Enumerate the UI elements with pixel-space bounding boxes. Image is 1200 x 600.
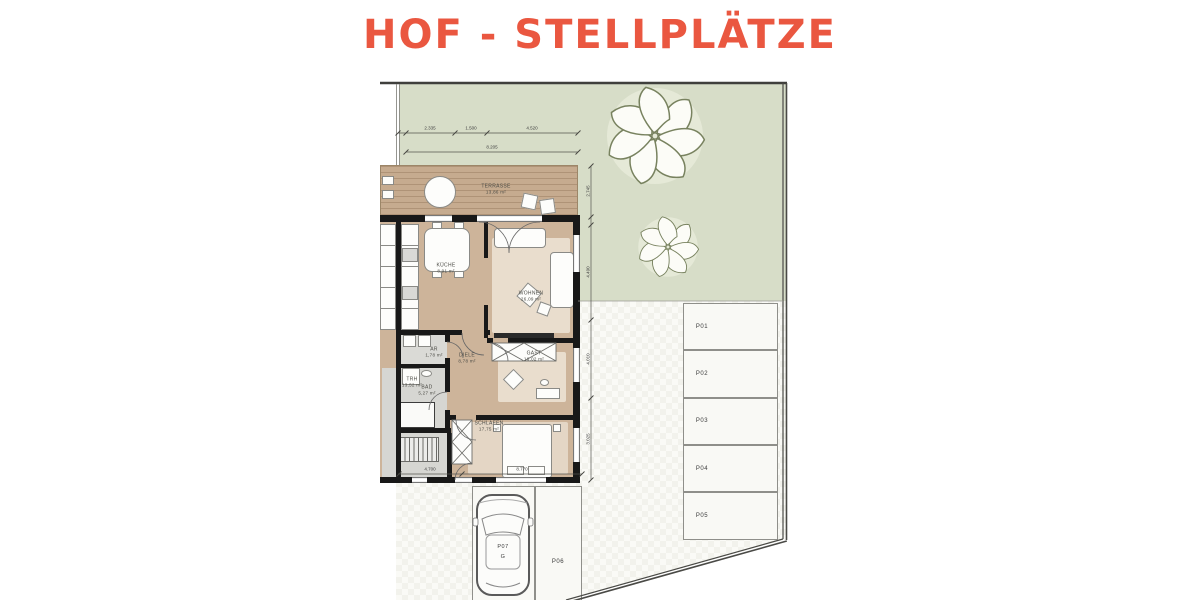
room-label-kueche: KÜCHE 8,91 m² [436, 263, 455, 274]
wall-segment [472, 477, 496, 483]
window [496, 477, 546, 483]
floor-plan-page: HOF - STELLPLÄTZE [0, 0, 1200, 600]
parking-label-p01: P01 [696, 324, 708, 330]
room-label-schlafen: SCHLAFEN 17,75 m² [474, 421, 503, 432]
staircase [399, 437, 439, 462]
desk-chair [540, 379, 549, 386]
room-label-terrasse: TERRASSE 13,86 m² [481, 184, 510, 195]
dim-right-1: 2.745 [586, 185, 591, 196]
window [573, 348, 580, 382]
wall-segment [445, 330, 450, 342]
parking-label-p04: P04 [696, 466, 708, 472]
wall-segment [447, 433, 452, 483]
parking-stall-p07 [472, 486, 535, 600]
room-label-gast: GAST 16,02 m² [524, 351, 544, 362]
entry-door [455, 477, 472, 483]
wall-segment [508, 338, 578, 343]
terrace-door [477, 215, 542, 222]
dim-top-2: 1.500 [465, 126, 476, 131]
window [573, 235, 580, 272]
dim-right-4: 3.025 [586, 433, 591, 444]
wall-segment [445, 358, 450, 392]
neighbor-terrace-chair [382, 176, 394, 185]
wall-segment [445, 410, 450, 433]
party-wall [396, 215, 401, 483]
desk [536, 388, 560, 399]
parking-label-p06: P06 [552, 559, 564, 565]
parking-label-p07: P07 [497, 544, 508, 550]
sofa [494, 228, 546, 248]
dryer [418, 335, 431, 347]
washer [403, 335, 416, 347]
nightstand [553, 424, 561, 432]
wall-segment [573, 382, 580, 428]
room-label-ar: AR 1,78 m² [425, 347, 442, 358]
dining-chair [454, 222, 464, 229]
wall-segment [452, 215, 477, 222]
kitchen-appliance [402, 248, 418, 262]
wall-segment [396, 428, 451, 433]
dim-bottom-2: 8.770 [516, 467, 527, 472]
wall-segment [396, 364, 447, 368]
room-label-trh: TRH 13,52 m² [402, 377, 422, 388]
parking-stall-p06 [535, 486, 582, 600]
dim-right-3: 4.010 [586, 353, 591, 364]
wall-segment [484, 305, 488, 338]
terrace-table [424, 176, 456, 208]
window [573, 428, 580, 462]
pillow [528, 466, 545, 475]
lounge-chair [539, 198, 556, 215]
wall-segment [573, 215, 580, 235]
dim-top-1: 2.335 [424, 126, 435, 131]
window [425, 215, 452, 222]
dim-bottom-1: 4.700 [424, 467, 435, 472]
stair-landing-window [397, 402, 435, 428]
wall-segment [487, 338, 493, 343]
lounge-chair [521, 193, 539, 211]
wall-segment [380, 215, 425, 222]
parking-label-p02: P02 [696, 371, 708, 377]
chaise-longue [550, 252, 574, 308]
window [412, 477, 427, 483]
sink [421, 370, 432, 377]
wall-segment [573, 272, 580, 348]
dim-top-3: 4.520 [526, 126, 537, 131]
dim-top-total: 8.205 [486, 145, 497, 150]
kitchen-appliance [402, 286, 418, 300]
wall-segment [573, 462, 580, 483]
wall-segment [484, 222, 488, 258]
parking-label-p03: P03 [696, 418, 708, 424]
page-title: HOF - STELLPLÄTZE [0, 12, 1200, 58]
neighbor-terrace-chair [382, 190, 394, 199]
parking-label-p05: P05 [696, 513, 708, 519]
wall-segment [476, 415, 578, 420]
wall-segment [396, 330, 462, 335]
parking-label-p07-g: G [501, 554, 506, 560]
room-label-wohnen: WOHNEN 26,09 m² [519, 291, 544, 302]
dining-chair [432, 222, 442, 229]
dim-right-2: 4.490 [586, 266, 591, 277]
room-label-diele: DIELE 8,78 m² [458, 353, 475, 364]
neighbor-kitchen-counter [380, 224, 396, 330]
kitchen-counter [401, 224, 419, 330]
